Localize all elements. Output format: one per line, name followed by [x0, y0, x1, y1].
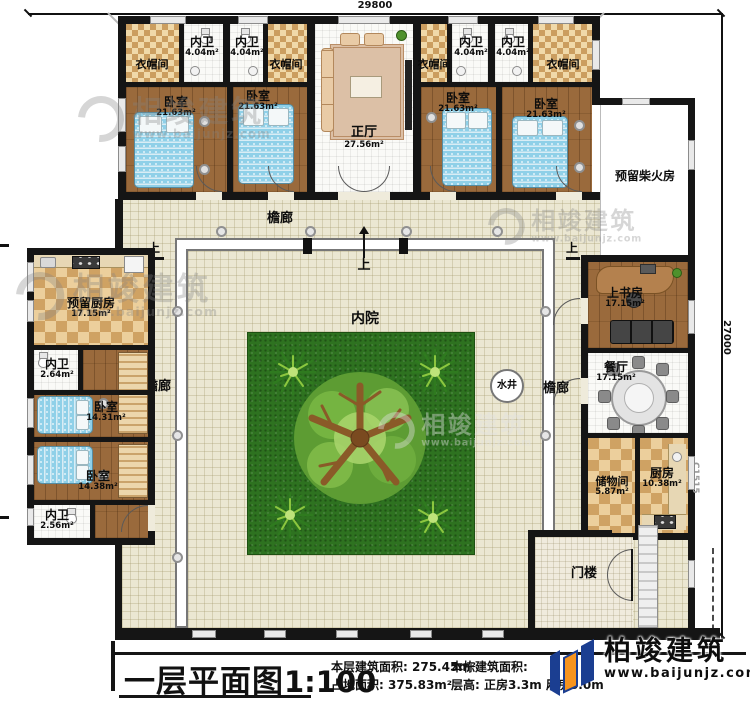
- room-label-inner-bath-1: 内卫4.04m²: [180, 34, 224, 60]
- window: [688, 300, 695, 334]
- up-steps-label-east: 上: [564, 241, 580, 256]
- room-label-inner-bath-w1: 内卫2.64m²: [36, 356, 78, 382]
- plant: [396, 30, 407, 41]
- door-gap: [196, 192, 222, 200]
- column-base: [305, 226, 316, 237]
- column-base: [172, 430, 183, 441]
- dining-table-center: [624, 383, 654, 413]
- plan-title-underline: [119, 695, 311, 698]
- monitor: [640, 264, 656, 274]
- window: [410, 630, 432, 638]
- room-label-bedroom-w1: 卧室14.31m²: [76, 399, 136, 425]
- entrance-steps: [638, 525, 658, 628]
- room-label-bedroom-n3: 卧室21.63m²: [428, 90, 488, 116]
- window: [688, 560, 695, 588]
- dimension-top-line: [28, 13, 722, 15]
- column-base: [216, 226, 227, 237]
- room-label-inner-bath-3: 内卫4.04m²: [450, 34, 492, 60]
- hall-armchair: [364, 33, 384, 46]
- window: [27, 262, 34, 292]
- door-gap: [581, 378, 588, 404]
- window: [688, 140, 695, 170]
- dimension-top-value: 29800: [340, 0, 410, 11]
- column-base: [172, 552, 183, 563]
- dimension-tick: [0, 244, 9, 247]
- sink: [672, 452, 682, 462]
- hall-coffee-table: [350, 76, 382, 98]
- room-label-inner-bath-w2: 内卫2.56m²: [34, 507, 80, 533]
- window: [338, 16, 390, 24]
- window: [27, 508, 34, 526]
- room-label-dining: 餐厅17.15m²: [588, 358, 644, 386]
- sink: [190, 66, 200, 76]
- room-label-inner-bath-2: 内卫4.04m²: [226, 34, 268, 60]
- chair: [656, 363, 669, 376]
- dimension-right-value: 27000: [721, 320, 732, 355]
- room-label-study: 上书房17.15m²: [592, 284, 658, 312]
- dimension-tick: [0, 516, 9, 519]
- room-cloakroom-1: [126, 24, 181, 82]
- door-gap: [148, 505, 155, 531]
- window: [622, 98, 650, 105]
- room-label-cloakroom-2: 衣帽间: [262, 58, 310, 72]
- wall: [115, 545, 122, 630]
- window: [118, 146, 126, 172]
- room-label-kitchen: 厨房10.38m²: [634, 464, 690, 492]
- bush: [269, 348, 317, 396]
- well: 水井: [490, 369, 524, 403]
- window: [238, 16, 268, 24]
- wall: [421, 82, 592, 87]
- window: [592, 40, 600, 70]
- chair: [656, 417, 669, 430]
- title-block-divider: [111, 641, 115, 691]
- chair: [666, 390, 679, 403]
- column-base: [540, 306, 551, 317]
- room-label-firewood: 预留柴火房: [604, 169, 686, 184]
- sink: [248, 66, 258, 76]
- building-area-label: 本栋建筑面积:: [451, 660, 528, 674]
- room-label-bedroom-n1: 卧室21.63m²: [146, 94, 206, 120]
- wall: [34, 390, 148, 395]
- chair: [598, 390, 611, 403]
- window: [192, 630, 216, 638]
- wall: [588, 348, 688, 353]
- column: [303, 238, 312, 254]
- window: [27, 398, 34, 428]
- wall: [34, 345, 148, 350]
- up-steps-label-center: 上: [356, 258, 372, 274]
- room-label-cloakroom-1: 衣帽间: [124, 58, 180, 72]
- room-label-storage: 储物间5.87m²: [583, 474, 641, 500]
- door-gap: [581, 298, 588, 324]
- wall: [307, 24, 315, 194]
- courtyard-label: 内院: [338, 311, 392, 328]
- wall: [115, 199, 123, 255]
- brand-name: 柏竣建筑: [604, 638, 750, 666]
- window: [264, 630, 286, 638]
- room-cloakroom-3: [421, 24, 447, 82]
- room-label-bedroom-n2: 卧室21.63m²: [228, 88, 288, 114]
- wall: [496, 87, 502, 192]
- door-gap: [430, 192, 456, 200]
- plant: [672, 268, 682, 278]
- room-cloakroom-2: [268, 24, 307, 82]
- window: [150, 16, 186, 24]
- study-sofa: [610, 320, 674, 344]
- floor-plan-sheet: 29800 27000: [0, 0, 750, 707]
- wall: [413, 24, 421, 194]
- wall: [90, 505, 95, 538]
- column-base: [172, 306, 183, 317]
- hall-armchair: [340, 33, 360, 46]
- column-base: [401, 226, 412, 237]
- bush: [411, 348, 459, 396]
- wall: [528, 530, 535, 628]
- window: [336, 630, 358, 638]
- sink: [40, 257, 56, 268]
- bush: [409, 494, 457, 542]
- window: [448, 16, 478, 24]
- fridge: [124, 256, 144, 273]
- height-label: 层高:: [451, 678, 480, 692]
- room-label-bedroom-w2: 卧室14.38m²: [68, 468, 128, 494]
- brand-logo: 柏竣建筑 www.baijunjz.com: [550, 638, 750, 698]
- wall: [34, 437, 148, 442]
- wall: [528, 530, 612, 537]
- wall: [78, 350, 83, 390]
- window: [482, 630, 504, 638]
- building-area-line: 本栋建筑面积:: [451, 658, 528, 675]
- room-label-main-hall: 正厅27.56m²: [327, 124, 401, 152]
- up-arrow-head: [359, 226, 369, 234]
- stove: [72, 256, 100, 269]
- sink: [512, 66, 522, 76]
- well-label: 水井: [497, 380, 517, 391]
- window: [27, 455, 34, 485]
- wall: [126, 82, 307, 87]
- room-label-cloakroom-4: 衣帽间: [534, 58, 592, 72]
- logo-mark: [550, 638, 596, 698]
- roof-overhang-dashed-line: [712, 548, 714, 640]
- site-area-value: 375.83m²: [388, 678, 452, 692]
- gate-door-pivot: [631, 549, 633, 601]
- column: [399, 238, 408, 254]
- room-label-reserved-kitchen: 预留厨房17.15m²: [56, 294, 126, 322]
- window: [27, 300, 34, 322]
- up-arrow-line: [363, 233, 365, 258]
- room-label-cloakroom-3: 衣帽间: [410, 58, 458, 72]
- room-label-inner-bath-4: 内卫4.04m²: [492, 34, 534, 60]
- room-label-bedroom-n4: 卧室21.63m²: [516, 96, 576, 122]
- door-gap: [556, 192, 582, 200]
- bed: [134, 112, 194, 188]
- room-cloakroom-4: [533, 24, 592, 82]
- floor-area-label: 本层建筑面积:: [331, 660, 408, 674]
- column-base: [540, 430, 551, 441]
- window: [688, 456, 695, 490]
- column-base: [492, 226, 503, 237]
- chair: [607, 417, 620, 430]
- corridor-label-north: 檐廊: [252, 212, 308, 227]
- bush: [266, 491, 314, 539]
- hall-sofa: [321, 48, 334, 132]
- site-area-label: 占地面积:: [331, 678, 384, 692]
- brand-url: www.baijunjz.com: [604, 666, 750, 681]
- door-gap: [338, 192, 390, 200]
- site-area-line: 占地面积: 375.83m²: [331, 676, 452, 693]
- window: [538, 16, 574, 24]
- step-mark: [566, 257, 580, 260]
- door-gap: [268, 192, 294, 200]
- window: [118, 98, 126, 132]
